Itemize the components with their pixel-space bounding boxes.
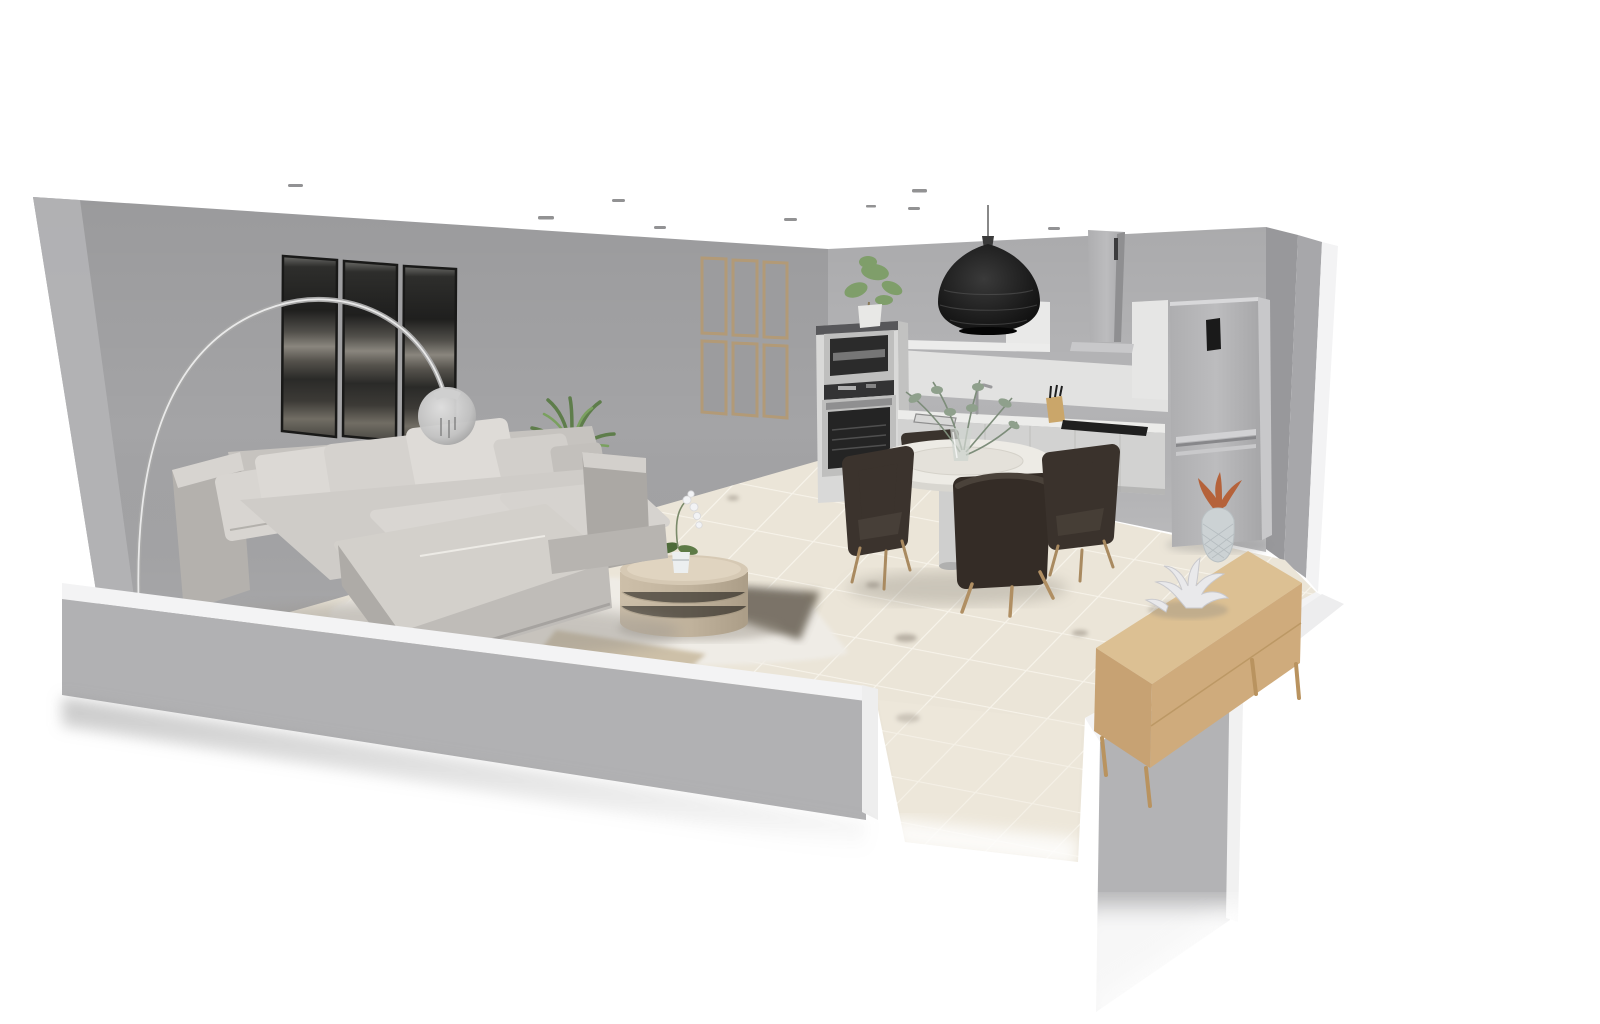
microwave: [824, 330, 894, 400]
mirror-pane: [702, 341, 726, 414]
mirror-pane: [764, 345, 787, 418]
mirror-pane: [702, 258, 726, 334]
mirror-pane: [764, 262, 787, 338]
art-panel: [343, 261, 397, 441]
room-3d-render[interactable]: [0, 0, 1600, 1024]
fridge-control-panel: [1206, 318, 1221, 351]
render-viewport[interactable]: [0, 0, 1600, 1024]
tall-white-panel: [1132, 300, 1168, 400]
mirror-pane: [733, 260, 757, 336]
lamp-globe: [418, 387, 476, 445]
front-left-end-face: [862, 685, 878, 820]
mirror-pane: [733, 343, 757, 416]
art-panel: [282, 256, 337, 437]
